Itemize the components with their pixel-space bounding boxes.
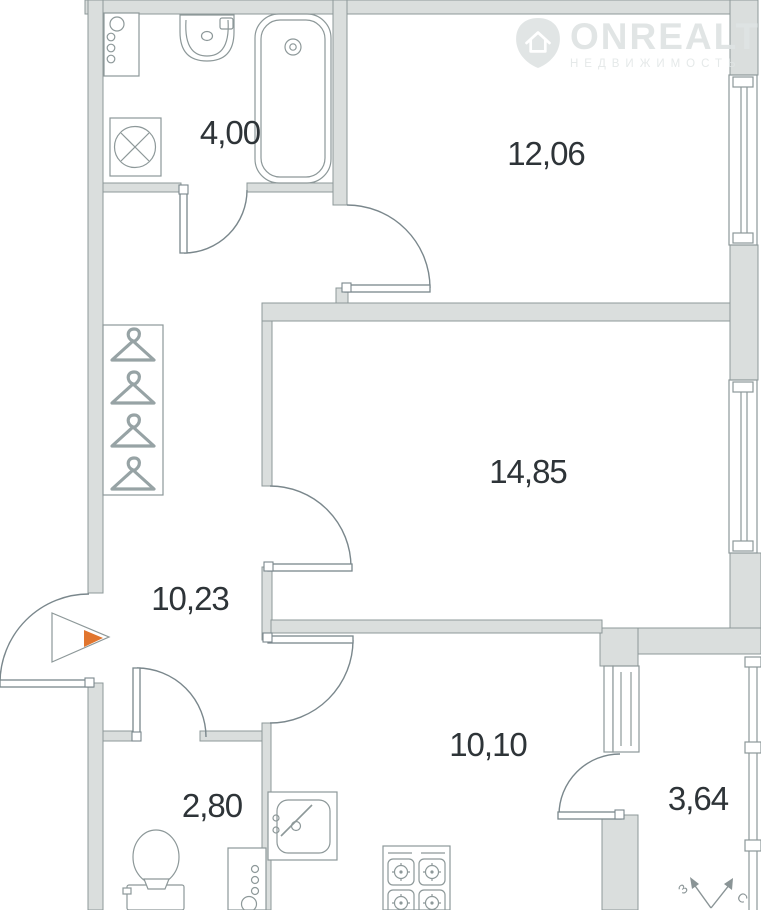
wall-left-upper xyxy=(88,0,103,593)
wall-right-2 xyxy=(730,245,758,380)
wall-wc-top-b xyxy=(200,731,262,741)
wall-top xyxy=(85,0,745,14)
compass-icon: З С xyxy=(675,877,751,908)
walls xyxy=(85,0,761,910)
room-label-wc: 2,80 xyxy=(182,787,242,825)
wall-balcony-corner xyxy=(600,628,638,666)
entrance-arrow-icon xyxy=(52,613,109,662)
bathroom-sink-icon xyxy=(180,15,234,61)
compass-west-label: З xyxy=(675,881,691,898)
plumbing-panel-icon xyxy=(104,13,139,76)
bathtub-icon xyxy=(255,14,331,183)
wall-bathroom-bedroom xyxy=(333,0,347,205)
door-balcony xyxy=(558,754,624,819)
floor-plan: З С 4,00 12,06 14,85 10,23 10,10 2,80 3,… xyxy=(0,0,761,910)
door-kitchen xyxy=(263,633,353,723)
balcony-glazing xyxy=(745,657,761,910)
wall-bathroom-bottom-left xyxy=(103,183,181,192)
room-label-hallway: 10,23 xyxy=(151,580,229,618)
wall-balcony-left-lower xyxy=(602,815,638,910)
floor-plan-drawing: З С xyxy=(0,0,761,910)
door-wc xyxy=(132,668,206,741)
wall-bathroom-bottom-right xyxy=(247,183,333,192)
wall-living-top xyxy=(262,303,730,321)
wall-hall-living-a xyxy=(262,321,272,486)
fixtures: З С xyxy=(52,13,751,910)
door-living-room xyxy=(264,486,352,571)
room-label-living-room: 14,85 xyxy=(489,453,567,491)
window-bedroom xyxy=(729,75,757,245)
wardrobe xyxy=(103,325,163,495)
door-bedroom xyxy=(342,205,430,292)
room-label-kitchen: 10,10 xyxy=(449,726,527,764)
wall-right-1 xyxy=(730,0,758,75)
wall-left-lower xyxy=(88,683,103,910)
kitchen-sink-icon xyxy=(268,792,337,860)
room-label-bedroom: 12,06 xyxy=(507,135,585,173)
balcony-door-window xyxy=(604,666,639,752)
door-bathroom xyxy=(179,185,247,253)
window-living-room xyxy=(729,380,757,553)
room-label-balcony: 3,64 xyxy=(668,780,728,818)
washing-machine-icon xyxy=(110,118,161,176)
stove-icon xyxy=(383,846,450,910)
wc-plumbing-panel-icon xyxy=(228,848,266,910)
wall-kitchen-top xyxy=(271,620,602,633)
toilet-icon xyxy=(123,830,184,910)
door-entrance xyxy=(0,594,94,687)
room-label-bathroom: 4,00 xyxy=(200,114,260,152)
